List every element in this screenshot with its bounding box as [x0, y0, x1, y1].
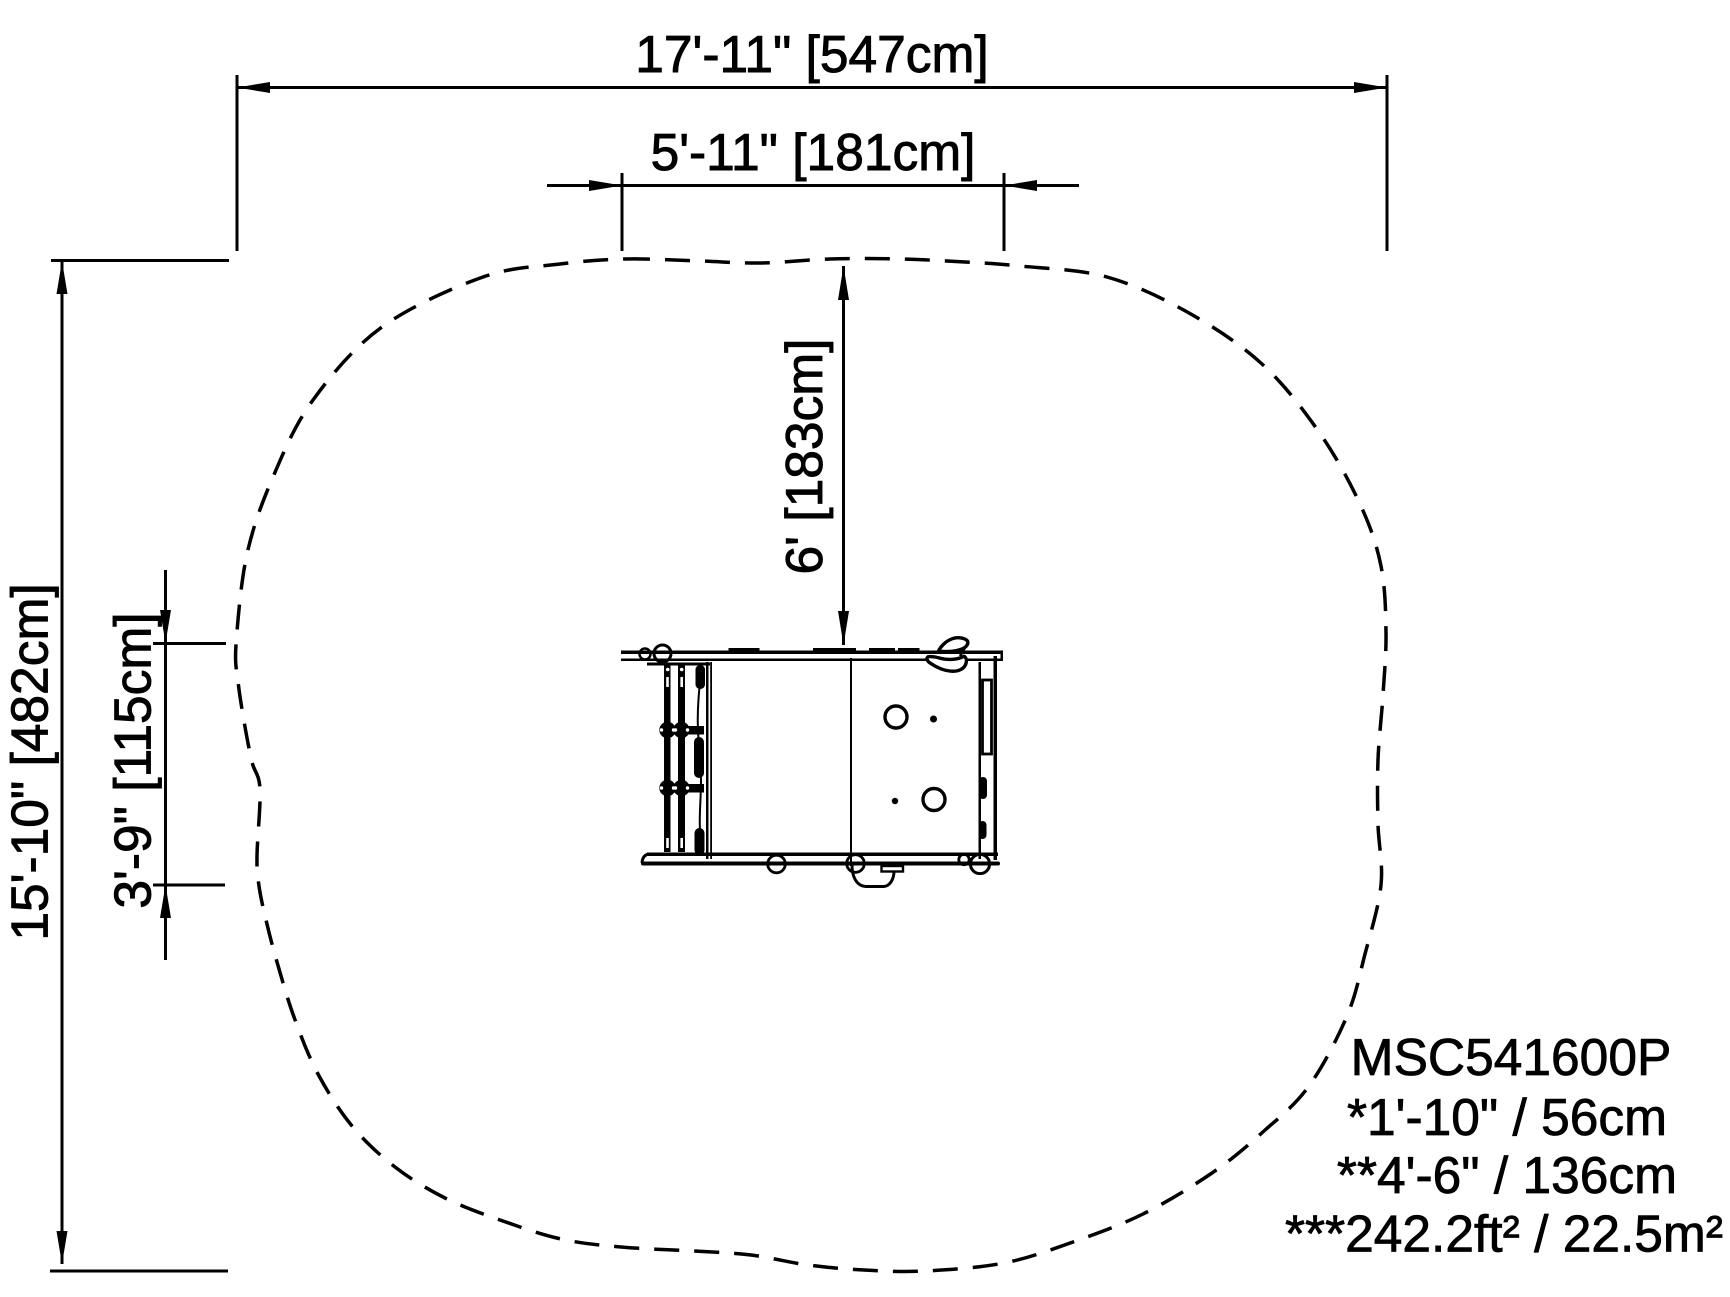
svg-text:17'-11" [547cm]: 17'-11" [547cm] — [635, 25, 989, 83]
svg-text:3'-9" [115cm]: 3'-9" [115cm] — [104, 612, 162, 908]
svg-text:15'-10" [482cm]: 15'-10" [482cm] — [1, 583, 59, 940]
svg-text:5'-11" [181cm]: 5'-11" [181cm] — [651, 123, 976, 181]
svg-text:***242.2ft² / 22.5m²: ***242.2ft² / 22.5m² — [1285, 1205, 1723, 1263]
svg-text:**4'-6" / 136cm: **4'-6" / 136cm — [1337, 1146, 1677, 1204]
svg-text:MSC541600P: MSC541600P — [1351, 1028, 1672, 1086]
svg-text:6' [183cm]: 6' [183cm] — [775, 339, 833, 575]
svg-text:*1'-10" / 56cm: *1'-10" / 56cm — [1347, 1088, 1667, 1146]
